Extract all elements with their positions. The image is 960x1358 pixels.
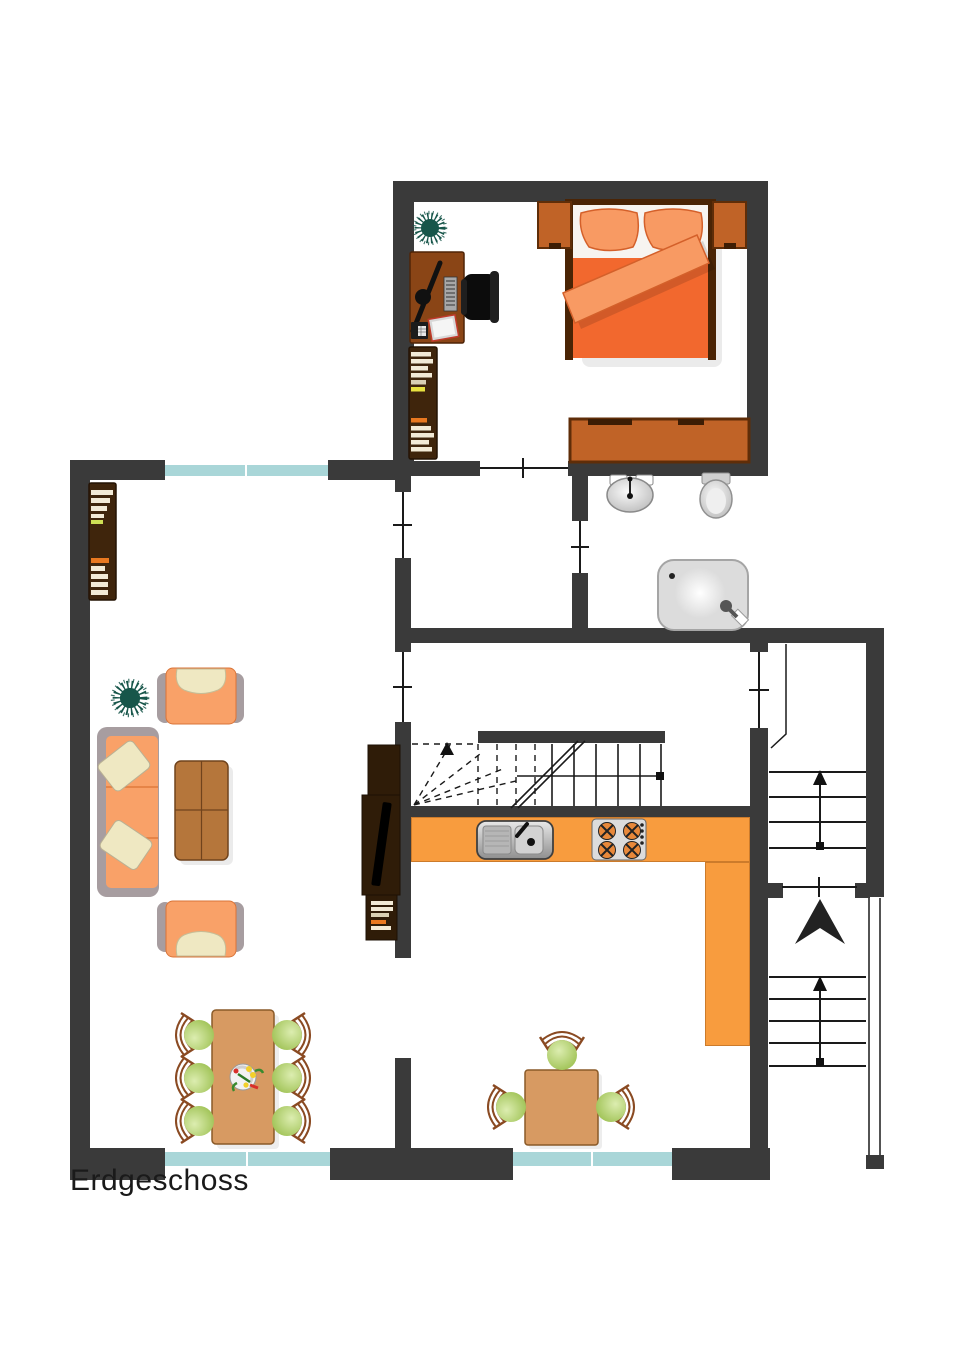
- stair-arrow-icon: [440, 742, 454, 755]
- dining-chair: [540, 1032, 584, 1070]
- bookshelf: [409, 347, 437, 459]
- burner-icon: [599, 842, 616, 859]
- keyboard-icon: [444, 277, 457, 311]
- bathroom-sink: [607, 475, 653, 512]
- desk: [410, 252, 464, 343]
- kitchen-table: [525, 1070, 602, 1149]
- tv-cabinet: [362, 745, 400, 940]
- stair-arrow-icon: [813, 976, 827, 991]
- entrance-arrow-icon: [795, 899, 845, 944]
- office-chair: [461, 271, 499, 323]
- sofa: [96, 727, 159, 897]
- potted-plant-icon: [415, 213, 446, 244]
- coffee-table: [175, 761, 233, 865]
- dining-chair: [488, 1085, 526, 1129]
- toilet: [700, 473, 732, 518]
- potted-plant-icon: [113, 681, 148, 716]
- notepad-icon: [428, 315, 458, 341]
- dresser: [570, 419, 749, 462]
- dining-chair: [176, 1056, 214, 1100]
- nightstand: [713, 202, 746, 249]
- bookshelf: [89, 483, 116, 600]
- burner-icon: [624, 823, 641, 840]
- telephone-icon: [411, 322, 428, 339]
- floorplan-erdgeschoss: Erdgeschoss: [0, 0, 960, 1358]
- kitchen-sink: [477, 821, 553, 859]
- staircase: [412, 741, 664, 808]
- dining-chair: [176, 1013, 214, 1057]
- floor-label: Erdgeschoss: [70, 1164, 249, 1198]
- shower: [658, 560, 748, 630]
- dining-chair: [176, 1099, 214, 1143]
- pillow-icon: [580, 209, 638, 251]
- double-bed: [563, 199, 722, 367]
- railing-icon: [869, 898, 880, 1155]
- door-swing-icon: [771, 644, 786, 748]
- stairwell: [769, 644, 880, 1155]
- armchair: [157, 668, 244, 724]
- stove: [592, 819, 646, 860]
- armchair: [157, 901, 244, 957]
- burner-icon: [599, 823, 616, 840]
- burner-icon: [624, 842, 641, 859]
- nightstand: [538, 202, 571, 249]
